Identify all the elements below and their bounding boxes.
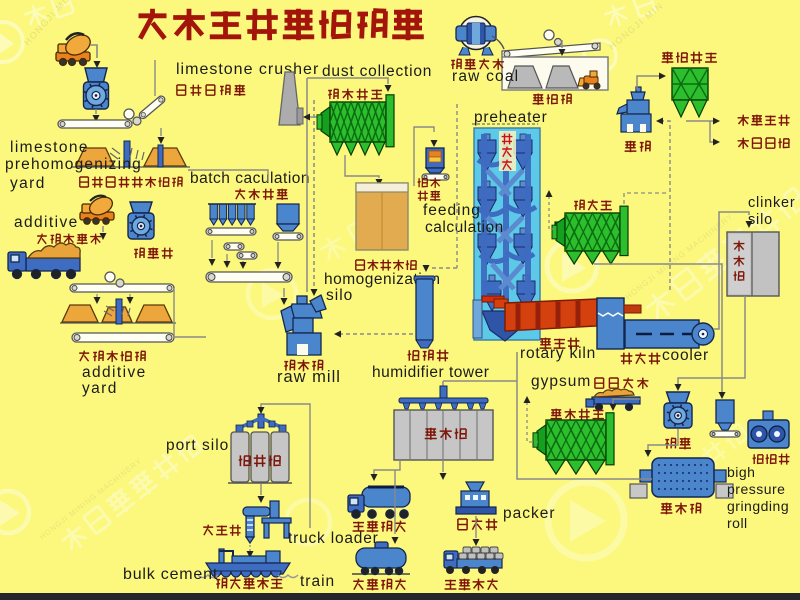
svg-text:limestone crusher: limestone crusher (176, 61, 319, 78)
svg-text:humidifier tower: humidifier tower (372, 364, 489, 381)
svg-text:yard: yard (82, 380, 118, 397)
svg-text:packer: packer (503, 505, 556, 522)
svg-text:train: train (300, 573, 335, 590)
svg-text:pressure: pressure (727, 481, 785, 497)
svg-text:batch caculation: batch caculation (190, 170, 310, 187)
svg-text:preheater: preheater (474, 109, 548, 126)
svg-text:port silo: port silo (166, 437, 229, 454)
svg-text:gringding: gringding (727, 498, 789, 514)
svg-text:cooler: cooler (662, 347, 709, 364)
svg-text:calculation: calculation (425, 219, 504, 236)
svg-text:bulk cement: bulk cement (123, 566, 218, 583)
svg-text:yard: yard (10, 175, 46, 192)
svg-text:limestone: limestone (10, 139, 89, 156)
svg-text:additive: additive (82, 364, 147, 381)
svg-text:prehomogenizing: prehomogenizing (5, 156, 142, 173)
svg-text:rotary kiln: rotary kiln (520, 345, 596, 362)
svg-text:roll: roll (727, 515, 748, 531)
svg-text:silo: silo (326, 287, 353, 304)
svg-text:gypsum: gypsum (531, 373, 591, 390)
svg-text:bigh: bigh (727, 464, 755, 480)
svg-text:raw mill: raw mill (277, 368, 341, 386)
svg-text:additive: additive (14, 214, 79, 231)
svg-text:feeding: feeding (423, 202, 481, 219)
svg-text:raw coal: raw coal (452, 68, 519, 85)
svg-text:silo: silo (748, 212, 773, 228)
svg-text:clinker: clinker (748, 195, 796, 211)
svg-text:truck loader: truck loader (288, 530, 379, 547)
